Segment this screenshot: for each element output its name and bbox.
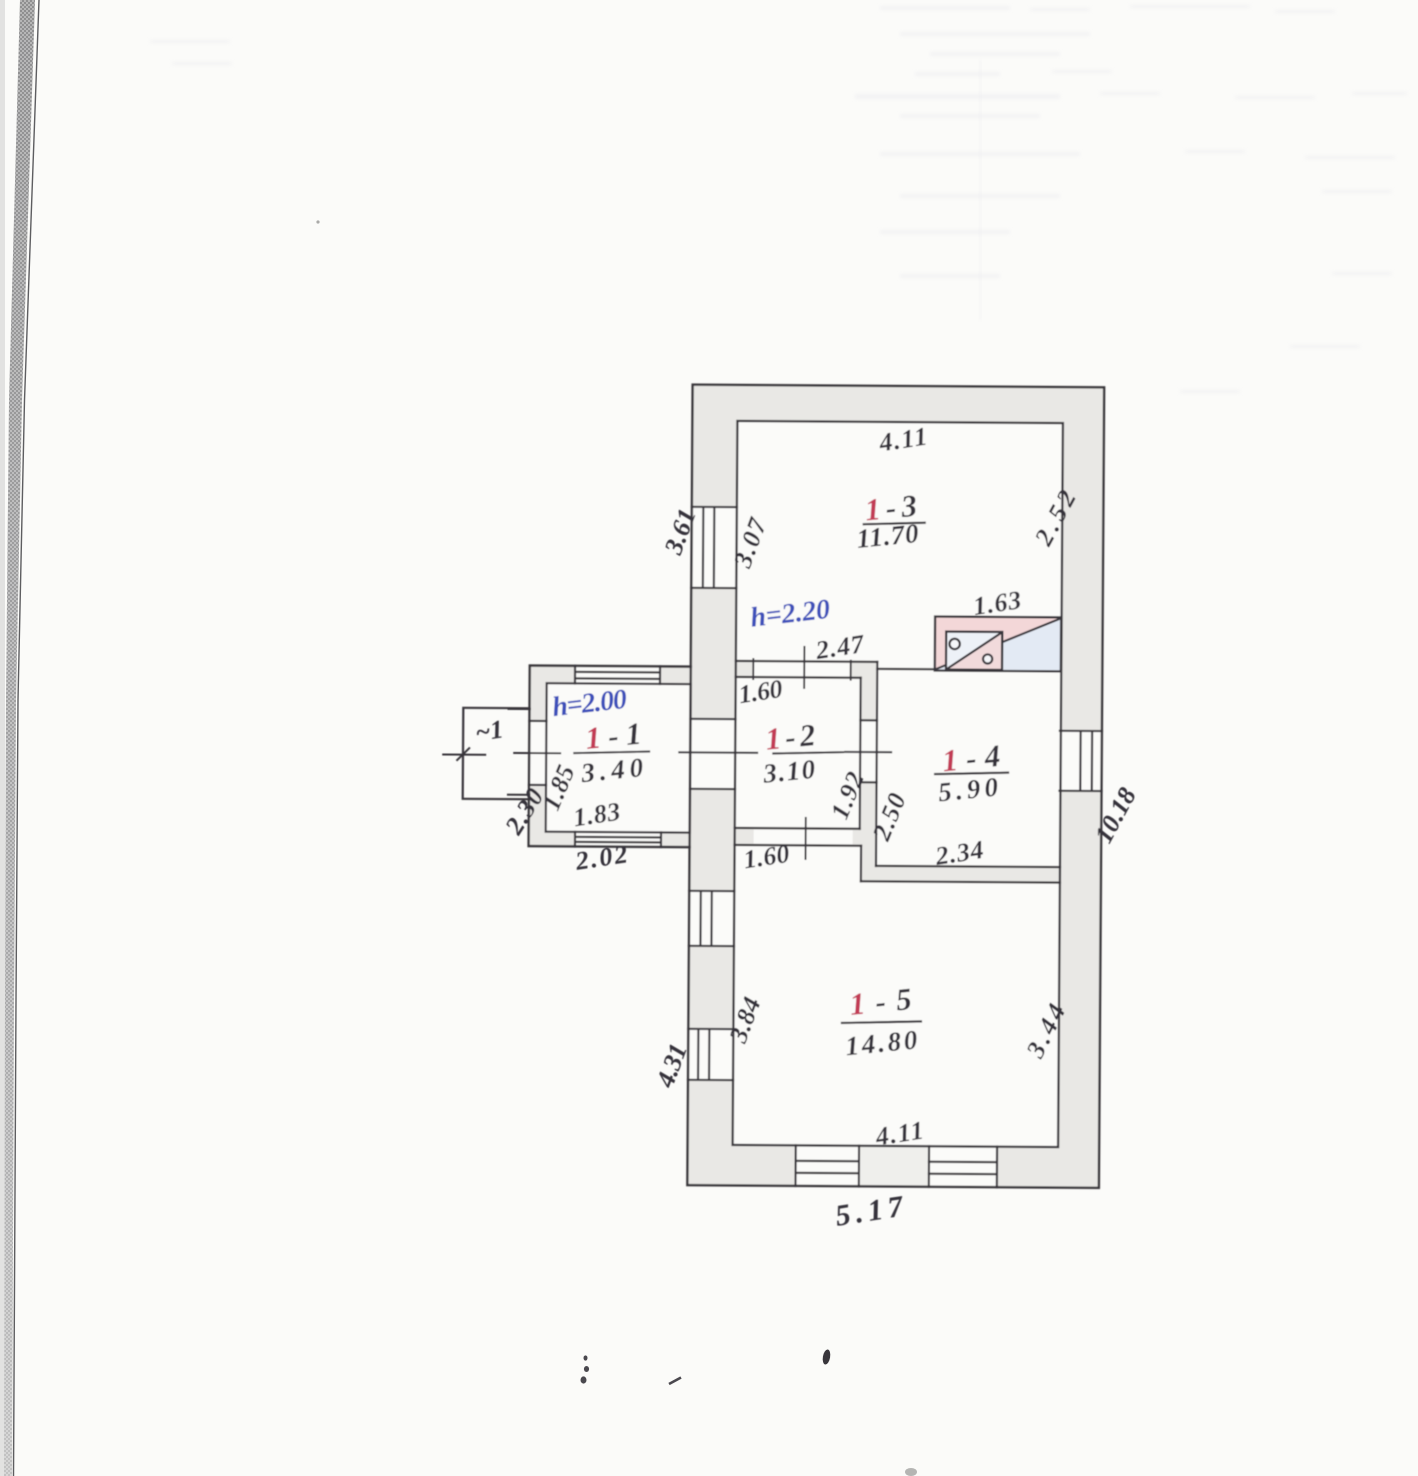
svg-text:3.40: 3.40	[579, 752, 645, 788]
svg-text:1-2: 1-2	[764, 717, 819, 757]
svg-text:11.70: 11.70	[855, 518, 920, 554]
svg-text:1-1: 1-1	[584, 715, 645, 756]
svg-text:1-5: 1-5	[848, 981, 915, 1022]
svg-text:5.90: 5.90	[937, 772, 1000, 808]
svg-text:3.10: 3.10	[761, 754, 817, 789]
svg-text:~1: ~1	[473, 714, 505, 747]
